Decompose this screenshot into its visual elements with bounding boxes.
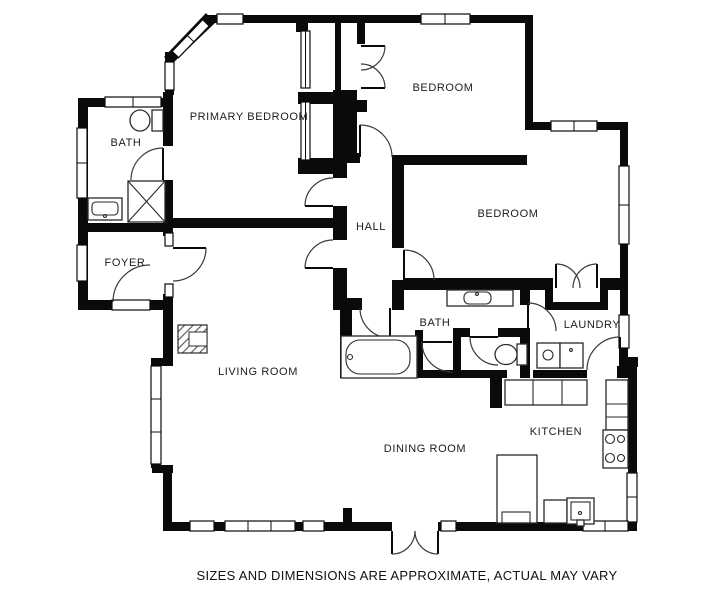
room-label-kitchen: KITCHEN	[530, 426, 582, 438]
vanity-fixture-ensuite	[88, 198, 122, 220]
washer-dryer-fixture	[537, 343, 583, 368]
foyer-sidelight-bottom	[165, 284, 173, 297]
foyer-sidelight-top	[165, 233, 173, 246]
floor-plan-drawing: PRIMARY BEDROOM BEDROOM BATH FOYER HALL …	[0, 0, 715, 600]
vanity-fixture-hall-bath	[447, 290, 513, 306]
kitchen-island	[497, 455, 537, 523]
bathtub-fixture	[341, 336, 417, 378]
room-label-foyer: FOYER	[105, 257, 146, 269]
floor-plan-page: PRIMARY BEDROOM BEDROOM BATH FOYER HALL …	[0, 0, 715, 600]
shower-fixture	[128, 181, 165, 222]
room-label-dining-room: DINING ROOM	[384, 443, 466, 455]
room-label-laundry: LAUNDRY	[564, 319, 621, 331]
toilet-fixture-ensuite	[130, 110, 163, 131]
room-label-primary-bedroom: PRIMARY BEDROOM	[190, 111, 309, 123]
room-label-bath-primary: BATH	[111, 137, 142, 149]
room-label-bedroom-right: BEDROOM	[477, 208, 538, 220]
room-label-bath-hall: BATH	[420, 317, 451, 329]
kitchen-counter-right	[606, 380, 628, 430]
fireplace	[178, 325, 207, 353]
toilet-fixture-hall-bath	[495, 344, 527, 365]
room-label-bedroom-top: BEDROOM	[412, 82, 473, 94]
kitchen-sink-fixture	[544, 498, 594, 526]
kitchen-counter-top	[505, 380, 587, 405]
disclaimer-text: SIZES AND DIMENSIONS ARE APPROXIMATE, AC…	[197, 568, 618, 583]
room-label-living-room: LIVING ROOM	[218, 366, 298, 378]
stove-fixture	[603, 430, 628, 468]
room-label-hall: HALL	[356, 221, 386, 233]
